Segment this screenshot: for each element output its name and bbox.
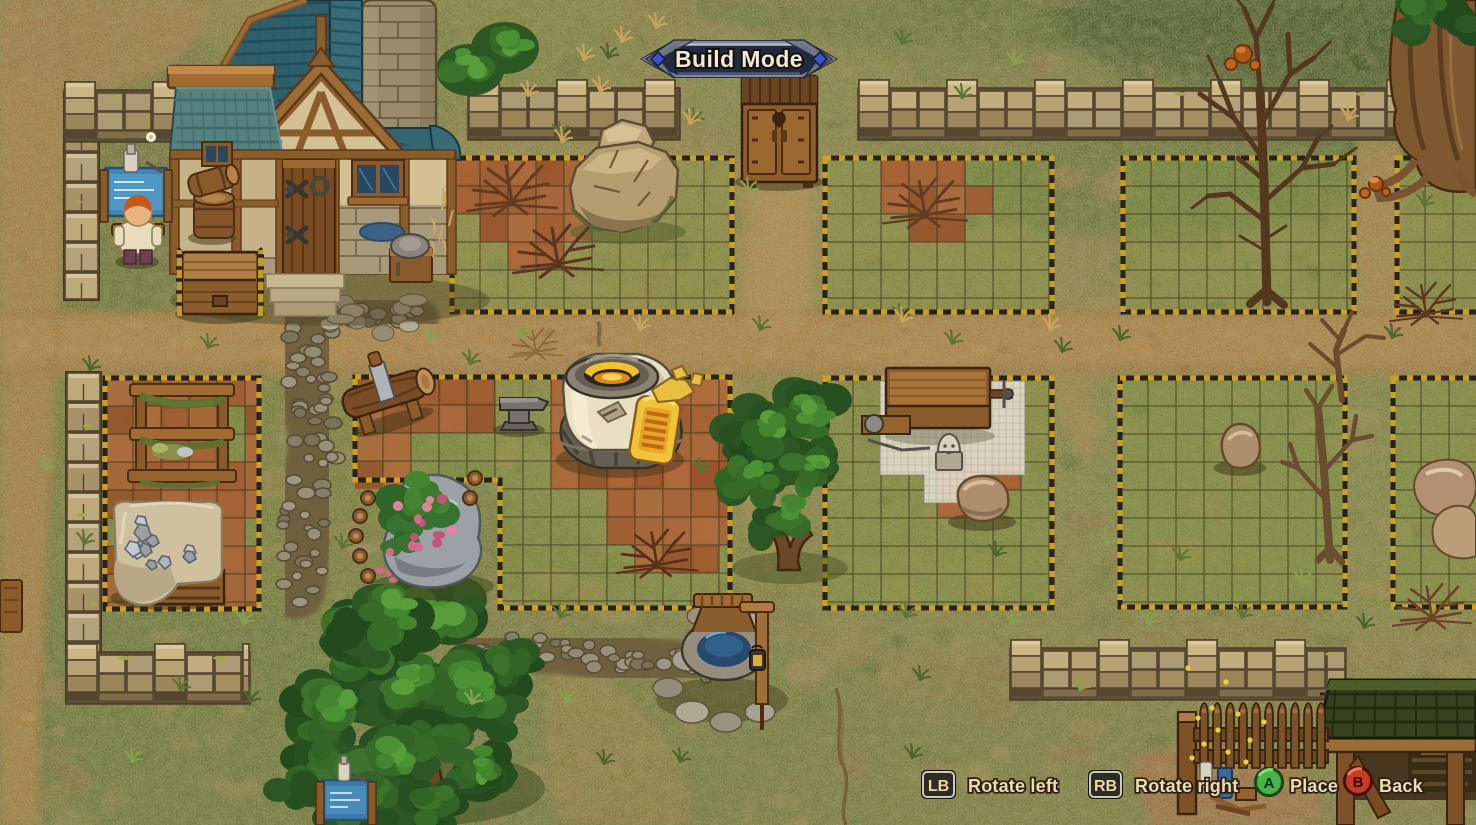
svg-text:Back: Back [1379,776,1424,796]
svg-text:B: B [1353,774,1364,791]
svg-text:A: A [1264,775,1275,792]
svg-text:Place: Place [1290,776,1338,796]
svg-text:Build Mode: Build Mode [675,46,803,72]
svg-text:Rotate left: Rotate left [968,776,1058,796]
svg-text:LB: LB [928,778,949,795]
svg-text:Rotate right: Rotate right [1135,776,1238,796]
svg-text:RB: RB [1094,778,1117,795]
